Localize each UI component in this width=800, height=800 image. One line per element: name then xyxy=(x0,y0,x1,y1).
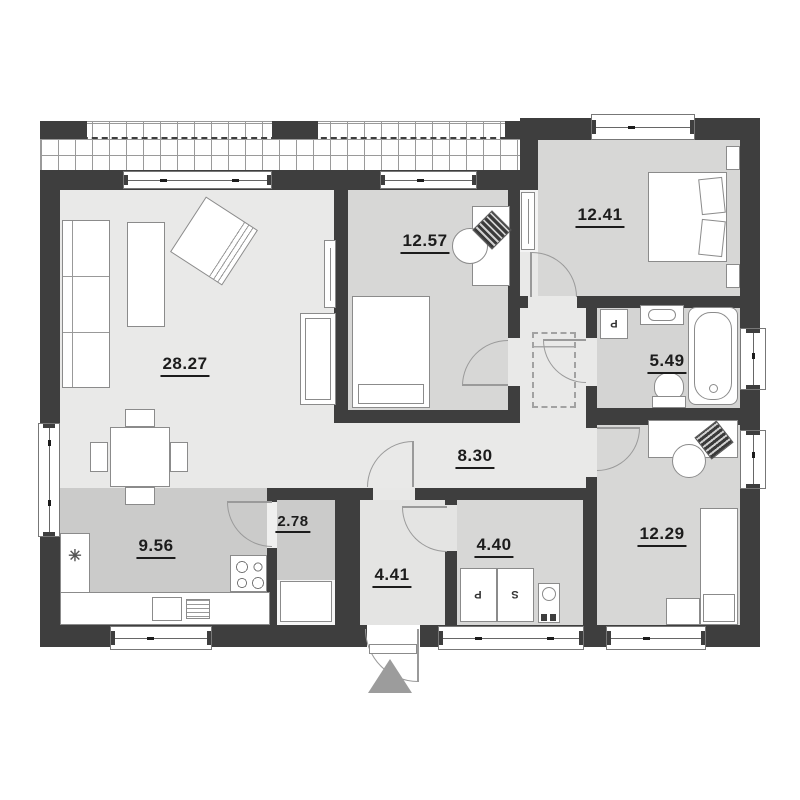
dryer-label: S xyxy=(504,588,526,600)
area-label-pantry: 2.78 xyxy=(275,513,310,533)
bed-pillow xyxy=(698,219,726,257)
kitchen-dish-rack xyxy=(186,599,210,619)
area-label-bedroom1: 12.57 xyxy=(400,231,449,254)
window-utility-bottom xyxy=(438,626,584,650)
door-leaf-vestibule-utility xyxy=(402,506,447,508)
window-bedroom1 xyxy=(380,171,477,189)
dining-chair xyxy=(90,442,108,472)
entrance-threshold xyxy=(369,644,417,654)
doorway-bedroom1 xyxy=(508,338,520,386)
sink-symbol-icon: ✳ xyxy=(64,546,86,566)
terrace-post xyxy=(40,121,87,139)
doorway-bathroom xyxy=(586,338,597,386)
stove xyxy=(230,555,267,592)
wall-left xyxy=(40,170,60,647)
nightstand xyxy=(726,264,740,288)
door-leaf-entrance xyxy=(417,629,419,682)
kitchen-sink-cabinet xyxy=(152,597,182,621)
window-living-left xyxy=(38,423,60,537)
boiler-connector xyxy=(541,614,547,621)
bed-pillow xyxy=(703,594,735,622)
door-leaf-bathroom xyxy=(543,339,586,341)
bed-pillow xyxy=(358,384,424,404)
desk-chair-2 xyxy=(672,444,706,478)
area-label-bathroom: 5.49 xyxy=(647,351,686,374)
area-label-bedroom2: 12.41 xyxy=(575,205,624,228)
door-leaf-vestibule-hall xyxy=(412,441,414,487)
dining-chair xyxy=(170,442,188,472)
window-terrace-slider xyxy=(123,171,272,189)
boiler-circle xyxy=(542,587,556,601)
boiler-connector xyxy=(550,614,556,621)
window-bedroom3-right xyxy=(740,430,766,489)
area-label-bedroom3: 12.29 xyxy=(637,524,686,547)
bathtub-drain xyxy=(709,384,718,393)
doorway-vestibule-hall xyxy=(373,488,415,500)
washing-machine-label: P xyxy=(467,588,489,600)
window-bathroom-right xyxy=(740,328,766,390)
area-label-hallway: 8.30 xyxy=(455,446,494,469)
nightstand xyxy=(666,598,700,625)
dining-chair xyxy=(125,409,155,427)
radiator-bedroom2 xyxy=(521,192,535,250)
nightstand xyxy=(726,146,740,170)
doorway-bedroom3 xyxy=(586,428,597,477)
tv-unit xyxy=(300,313,336,405)
window-kitchen-bottom xyxy=(110,626,212,650)
toilet-tank xyxy=(652,396,686,408)
floor-plan-canvas: ✳ P P S 28.27 9.56 12.57 12.41 5.49 8.30… xyxy=(0,0,800,800)
floor-pantry xyxy=(277,500,335,580)
wall-living-bedroom1 xyxy=(334,190,348,423)
door-leaf-bedroom2 xyxy=(530,252,532,297)
door-leaf-bedroom3 xyxy=(597,427,640,429)
washing-machine-bath-label: P xyxy=(603,317,625,329)
wall-below-bedroom1 xyxy=(334,410,520,423)
wall-utility-bedroom3 xyxy=(583,498,597,625)
dining-chair xyxy=(125,487,155,505)
window-bedroom2 xyxy=(591,114,695,140)
bathroom-sink-basin xyxy=(648,309,676,321)
area-label-living: 28.27 xyxy=(160,354,209,377)
dining-table xyxy=(110,427,170,487)
radiator-living xyxy=(324,240,336,308)
doorway-bedroom2 xyxy=(528,296,577,308)
area-label-kitchen: 9.56 xyxy=(136,536,175,559)
pantry-shelf xyxy=(280,581,332,622)
area-label-vestibule: 4.41 xyxy=(372,565,411,588)
area-label-utility: 4.40 xyxy=(474,535,513,558)
wall-pantry-vestibule xyxy=(335,500,360,625)
entrance-marker-triangle xyxy=(368,659,412,693)
wall-hallway-south xyxy=(267,488,597,500)
sideboard xyxy=(127,222,165,327)
door-leaf-pantry xyxy=(227,501,272,503)
sofa xyxy=(62,220,110,388)
terrace-post xyxy=(272,121,318,139)
window-bedroom3-bottom xyxy=(606,626,706,650)
door-leaf-bedroom1 xyxy=(462,384,508,386)
bed-pillow xyxy=(698,177,726,215)
